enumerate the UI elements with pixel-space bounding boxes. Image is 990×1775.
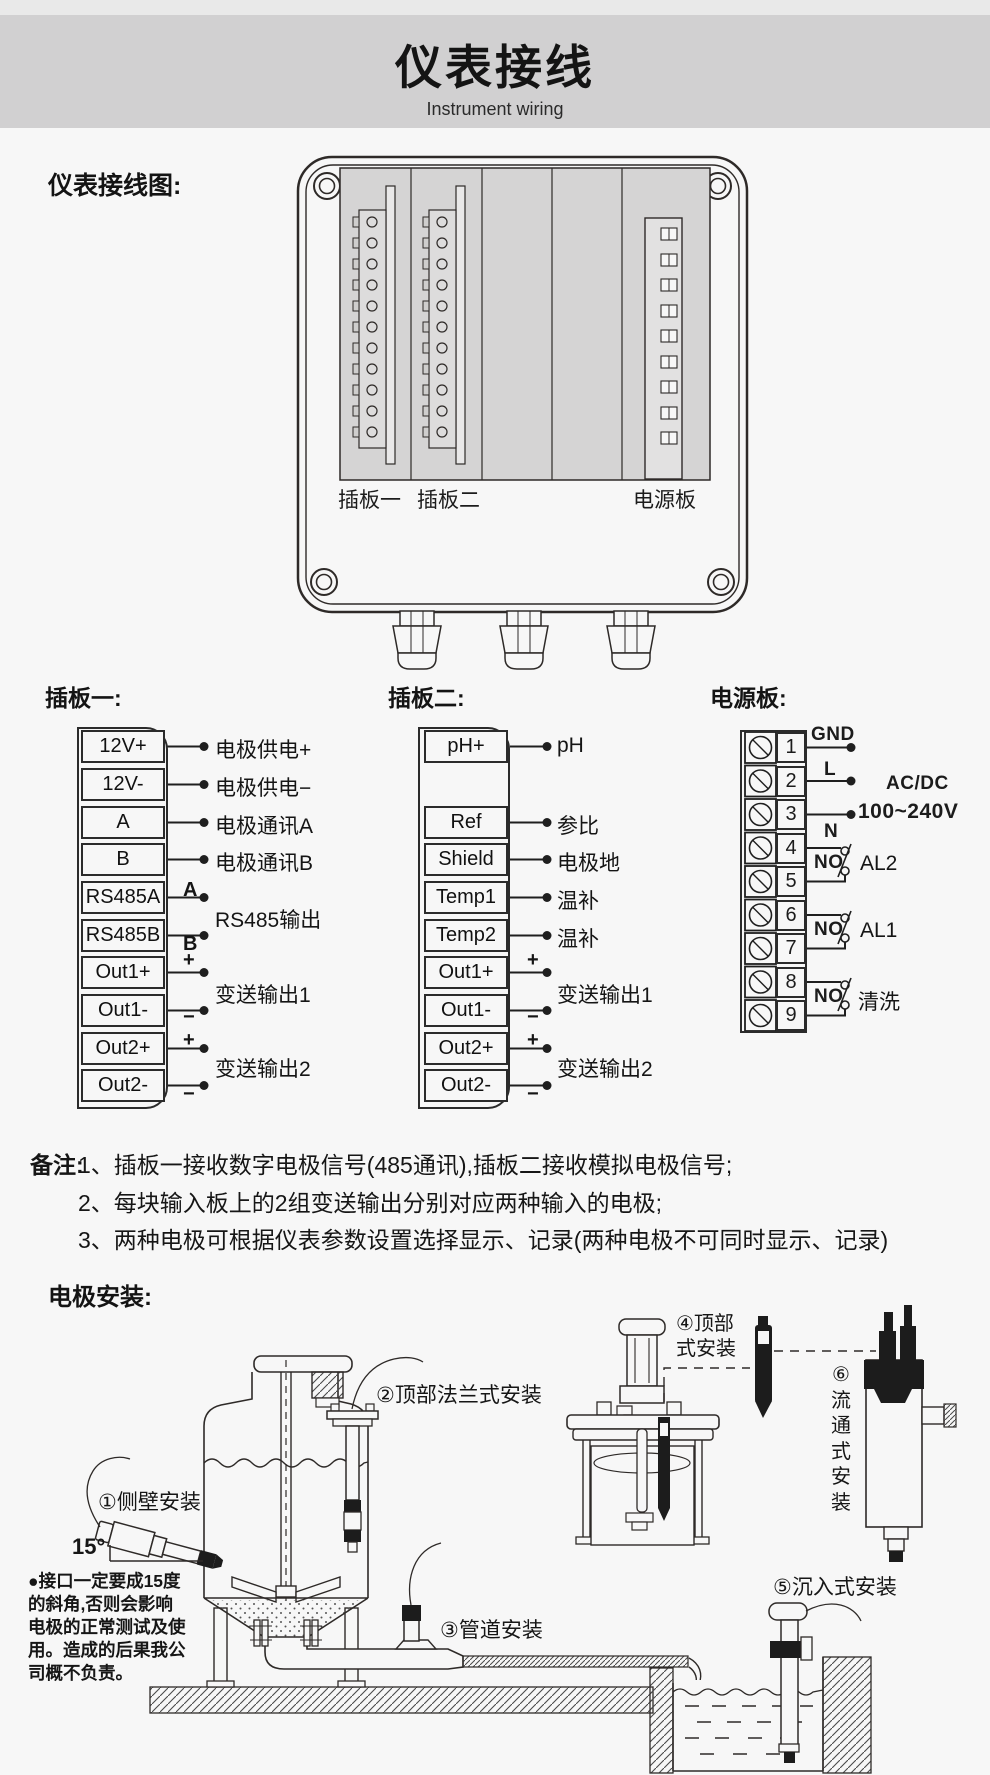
relay-no-label: NO [814,919,844,941]
wire-label: 电极通讯B [215,847,313,877]
wire-label: 电极供电− [215,772,311,802]
power-board-label: 电源板 [633,484,696,514]
terminal: 12V+ [81,730,165,763]
warning-text: ●接口一定要成15度 的斜角,否则会影响 电极的正常测试及使 用。造成的后果我公… [28,1570,214,1685]
terminal: 12V- [81,768,165,801]
relay-label: AL1 [860,919,897,943]
terminal: Temp2 [424,919,508,952]
wiring-diagram-label: 仪表接线图: [48,166,181,202]
wire-mark: − [527,1084,539,1104]
note-item: 2、每块输入板上的2组变送输出分别对应两种输入的电极; [78,1184,662,1218]
gnd-label: GND [811,724,855,746]
relay-no-label: NO [814,986,844,1008]
terminal: Out1+ [424,956,508,989]
wire-label: 温补 [557,885,599,915]
terminal: RS485A [81,881,165,914]
board1-title: 插板一: [45,679,122,713]
install-label-top-flange: ②顶部法兰式安装 [376,1379,542,1409]
note-item: 1、插板一接收数字电极信号(485通讯),插板二接收模拟电极信号; [78,1146,732,1180]
power-title: 电源板: [710,679,787,713]
terminal: Out2+ [81,1032,165,1065]
slot2-label: 插板二 [417,484,480,514]
power-terminal: 7 [776,933,806,964]
neutral-label: N [824,821,838,843]
line-label: L [824,759,836,781]
install-label-top: ④顶部 式安装 [676,1312,736,1362]
power-terminal: 8 [776,967,806,998]
terminal: B [81,843,165,876]
notes-title: 备注: [30,1146,84,1180]
install-label-pipe: ③管道安装 [440,1614,543,1644]
terminal: Out2- [81,1069,165,1102]
power-terminal: 5 [776,866,806,897]
power-terminal: 6 [776,900,806,931]
terminal: Out1- [424,994,508,1027]
terminal: Shield [424,843,508,876]
terminal: Out2+ [424,1032,508,1065]
terminal: Ref [424,806,508,839]
wire-label: 参比 [557,810,599,840]
wire-label: 变送输出1 [557,979,653,1009]
install-label-submersion: ⑤沉入式安装 [773,1571,897,1601]
acdc-label: AC/DC [886,773,949,795]
power-terminal: 3 [776,799,806,830]
note-item: 3、两种电极可根据仪表参数设置选择显示、记录(两种电极不可同时显示、记录) [78,1221,888,1255]
wire-mark: + [527,1030,539,1050]
power-terminal: 9 [776,1000,806,1031]
wire-mark: − [527,1007,539,1027]
wire-label: 电极通讯A [215,810,313,840]
wire-label: RS485输出 [215,904,321,934]
wire-label: pH [557,734,584,758]
page: 仪表接线 Instrument wiring [0,0,990,1775]
wire-label: 变送输出2 [215,1053,311,1083]
wire-mark: + [183,950,195,970]
slot1-label: 插板一 [338,484,401,514]
instrument-box-drawing [298,157,747,669]
wire-mark: + [527,950,539,970]
terminal: Out1- [81,994,165,1027]
wire-mark: A [183,880,197,900]
terminal: Temp1 [424,881,508,914]
power-terminal: 1 [776,732,806,763]
wire-label: 电极地 [557,847,620,877]
installation-drawing [87,1305,956,1773]
relay-no-label: NO [814,852,844,874]
power-terminal: 2 [776,766,806,797]
install-label-flow: ⑥流通式安装 [828,1363,854,1516]
relay-label: 清洗 [858,986,900,1016]
wire-label: 变送输出1 [215,979,311,1009]
terminal: RS485B [81,919,165,952]
wire-mark: − [183,1084,195,1104]
angle-label: 15° [72,1534,105,1560]
terminal: pH+ [424,730,508,763]
relay-label: AL2 [860,852,897,876]
board2-title: 插板二: [388,679,465,713]
power-terminal: 4 [776,833,806,864]
wire-label: 变送输出2 [557,1053,653,1083]
wire-mark: + [183,1030,195,1050]
install-label-side: ①侧壁安装 [98,1486,201,1516]
terminal: A [81,806,165,839]
wire-label: 温补 [557,923,599,953]
voltage-range-label: 100~240V [858,800,958,824]
wire-label: 电极供电+ [215,734,311,764]
install-title: 电极安装: [48,1277,152,1312]
terminal: Out2- [424,1069,508,1102]
terminal: Out1+ [81,956,165,989]
wire-mark: − [183,1007,195,1027]
